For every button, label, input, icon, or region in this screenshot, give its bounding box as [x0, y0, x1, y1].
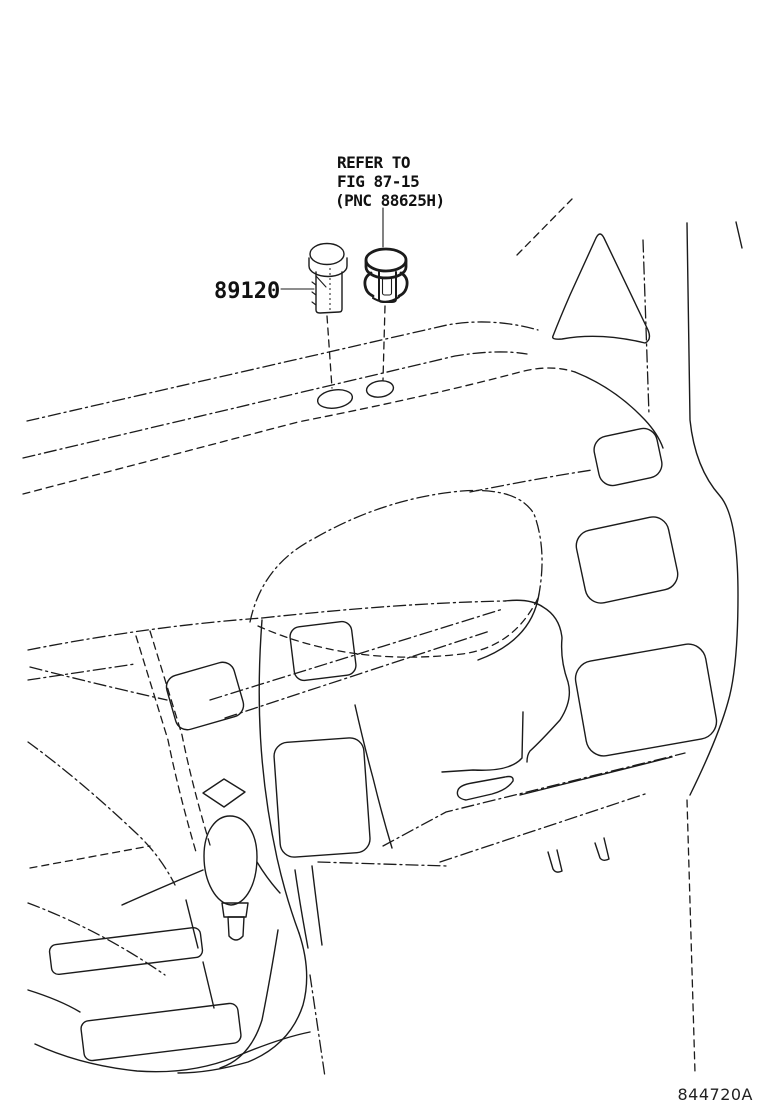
side-vent: [592, 426, 665, 488]
mount-holes: [316, 379, 394, 410]
clip-cap: [366, 249, 406, 271]
leader-dashed-clip: [383, 306, 385, 380]
clip-tab-left: [365, 273, 373, 296]
windshield-edge: [517, 199, 572, 255]
shift-collar: [222, 903, 248, 917]
leader-lines: [281, 208, 385, 388]
stack-right-surround: [505, 600, 569, 762]
stack-right-edge: [355, 705, 392, 848]
knee-crease: [30, 846, 150, 868]
part-number-label: 89120: [214, 279, 280, 304]
panel-divider-1: [186, 900, 198, 948]
radio-opening: [273, 737, 371, 858]
sensor-body: [316, 272, 342, 313]
drawing-code: 844720A: [677, 1085, 753, 1104]
small-switch-opening: [203, 779, 245, 807]
parts-diagram-page: REFER TO FIG 87-15 (PNC 88625H) 89120 84…: [0, 0, 760, 1112]
driver-crease-1: [28, 618, 262, 650]
column-strip-left: [136, 636, 196, 852]
mount-hole-clip: [366, 379, 395, 399]
clip-tab-right: [399, 273, 407, 296]
cluster-recess: [164, 659, 247, 732]
cluster-hood-corner: [478, 594, 539, 660]
console-outline: [178, 933, 307, 1073]
clip-cap-band: [366, 261, 406, 278]
dashboard-diagram: REFER TO FIG 87-15 (PNC 88625H) 89120 84…: [0, 0, 760, 1112]
cluster-hood-top: [250, 490, 542, 622]
passenger-panel-opening: [573, 514, 680, 606]
dash-right-outline: [687, 223, 738, 795]
console-left-line: [122, 870, 203, 905]
console-inner-line: [220, 930, 278, 1068]
stack-surround-bottom: [442, 712, 523, 772]
dashboard-linework: [23, 199, 742, 1077]
reference-note-line1: REFER TO: [337, 153, 410, 172]
crease-to-vent: [470, 470, 592, 492]
knee-panel-lower: [80, 1003, 242, 1062]
knee-panel-upper: [49, 927, 204, 975]
mid-crease-diag-2: [225, 631, 490, 718]
mount-hole-sensor: [316, 388, 353, 411]
column-strip-right: [150, 631, 210, 845]
trim-notch-1: [548, 850, 562, 872]
console-right-line: [257, 862, 280, 893]
right-vertical-dashed: [687, 800, 695, 1073]
mid-crease-upper: [262, 601, 505, 618]
driver-lower-outline: [28, 742, 175, 885]
cowl-line-1: [27, 322, 538, 421]
shift-stem: [228, 917, 244, 940]
dash-top-edge: [23, 368, 575, 494]
footwell-crease: [318, 862, 447, 866]
dash-pad-right-edge: [575, 372, 663, 448]
reference-note: REFER TO FIG 87-15 (PNC 88625H): [335, 153, 445, 210]
pillar-inner-line: [643, 240, 649, 415]
sensor-dome: [310, 244, 344, 265]
reference-note-line2: FIG 87-15: [337, 172, 419, 191]
trim-notch-2: [595, 838, 609, 860]
panel-divider-2: [203, 962, 214, 1008]
lower-trim-line: [520, 757, 672, 795]
part-88625h-clip: [365, 249, 407, 302]
lower-trim-crease-2: [440, 794, 645, 862]
console-side-1: [295, 870, 308, 948]
console-side-2: [312, 866, 322, 945]
sensor-body-detail: [316, 276, 326, 287]
a-pillar-window: [553, 234, 650, 343]
lower-trim-crease-1: [383, 753, 685, 846]
clip-inner-slot: [383, 277, 392, 295]
driver-crease-2: [28, 664, 135, 680]
shift-knob: [204, 816, 257, 905]
knee-edge-line: [28, 990, 80, 1012]
part-89120-sensor: [309, 244, 347, 314]
console-diag-dashed: [310, 975, 325, 1077]
trim-bracket: [457, 777, 513, 801]
glove-box: [573, 641, 720, 758]
reference-note-line3: (PNC 88625H): [335, 191, 445, 210]
pillar-outer-tick: [736, 222, 742, 248]
